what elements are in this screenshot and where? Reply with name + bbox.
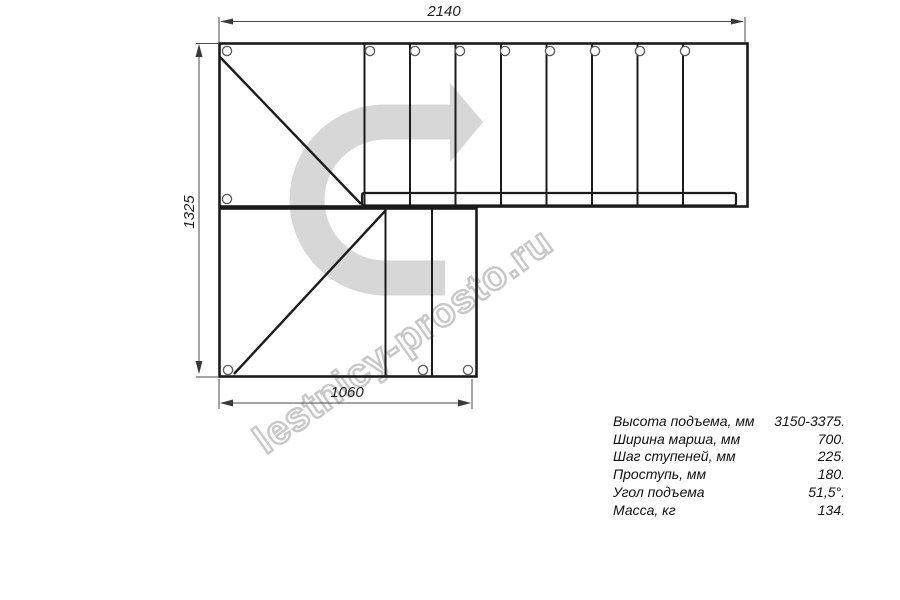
spec-row-angle: Угол подъема 51,5°.: [613, 484, 845, 502]
spec-row-tread: Проступь, мм 180.: [613, 466, 845, 484]
watermark: lestnicy-prosto.ru: [246, 220, 561, 462]
spec-label: Ширина марша, мм: [613, 431, 740, 449]
spec-row-height: Высота подъема, мм 3150-3375.: [613, 413, 845, 431]
spec-value: 134.: [818, 502, 845, 520]
spec-value: 225.: [818, 448, 845, 466]
dimension-top: [219, 17, 745, 42]
spec-label: Высота подъема, мм: [613, 413, 755, 431]
dimension-left-label: 1325: [181, 195, 198, 229]
spec-value: 180.: [818, 466, 845, 484]
drawing-canvas: lestnicy-prosto.ru: [0, 0, 900, 600]
direction-up-arrow-icon: [307, 83, 483, 278]
spec-value: 3150-3375.: [774, 413, 845, 431]
dimension-bottom-label: 1060: [330, 384, 364, 401]
dimension-left: [196, 44, 219, 378]
dimension-top-label: 2140: [426, 3, 461, 20]
spec-row-flight-width: Ширина марша, мм 700.: [613, 431, 845, 449]
spec-label: Проступь, мм: [613, 466, 706, 484]
spec-row-step-pitch: Шаг ступеней, мм 225.: [613, 448, 845, 466]
spec-row-mass: Масса, кг 134.: [613, 502, 845, 520]
spec-label: Масса, кг: [613, 502, 676, 520]
spec-label: Шаг ступеней, мм: [613, 448, 736, 466]
spec-value: 700.: [818, 431, 845, 449]
spec-table: Высота подъема, мм 3150-3375. Ширина мар…: [613, 413, 845, 519]
spec-value: 51,5°.: [808, 484, 845, 502]
watermark-text: lestnicy-prosto.ru: [246, 220, 561, 462]
stringer-beam: [362, 193, 736, 206]
spec-label: Угол подъема: [613, 484, 705, 502]
